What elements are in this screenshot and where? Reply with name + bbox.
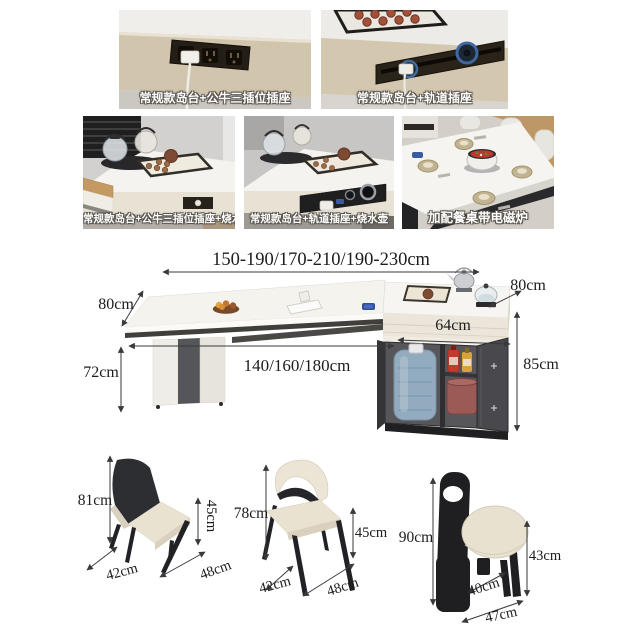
chair-b-seat-width: 48cm <box>325 574 361 599</box>
photo-dining-table-induction: 加配餐桌带电磁炉 <box>402 116 554 229</box>
hot-pot <box>464 149 500 173</box>
dim-island-height: 85cm <box>523 356 559 373</box>
photo-caption: 常规款岛台+公牛三插位插座 <box>119 89 311 106</box>
dim-island-width: 64cm <box>435 317 471 334</box>
table-dimension-diagram: 150-190/170-210/190-230cm 80cm 80cm 64cm… <box>0 240 640 450</box>
photo-caption: 常规款岛台+轨道插座+烧水壶 <box>244 211 394 226</box>
open-cabinet-door <box>477 338 508 432</box>
photo-caption: 加配餐桌带电磁炉 <box>402 207 554 226</box>
dim-total-length: 150-190/170-210/190-230cm <box>212 250 430 270</box>
chair-c-seat-height: 43cm <box>529 548 562 564</box>
water-jug <box>394 344 436 420</box>
chair-dimension-diagrams: 81cm 45cm 42cm 48cm 78cm 45cm 42cm <box>0 448 640 640</box>
control-recess <box>183 197 213 209</box>
dim-depth-right: 80cm <box>510 277 546 294</box>
chair-b-back-height: 78cm <box>234 505 268 522</box>
furniture-spec-sheet: 常规款岛台+公牛三插位插座 常规款岛台+轨道插座 <box>0 0 640 640</box>
chair-c-seat-width: 47cm <box>484 604 520 626</box>
chair-c-back-height: 90cm <box>399 529 433 546</box>
photo-island-track-socket-kettle: 常规款岛台+轨道插座+烧水壶 <box>244 116 394 229</box>
chair-a-seat-depth: 42cm <box>104 560 140 584</box>
chair-a-back-height: 81cm <box>78 492 112 509</box>
chair-c-seat-depth: 40cm <box>466 574 502 599</box>
photo-island-bull-socket: 常规款岛台+公牛三插位插座 <box>119 10 311 109</box>
photo-island-bull-socket-kettle: 常规款岛台+公牛三插位插座+烧水壶 <box>83 116 235 229</box>
dim-fixed-length: 140/160/180cm <box>244 356 351 375</box>
photo-caption: 常规款岛台+公牛三插位插座+烧水壶 <box>83 211 235 226</box>
chair-a-seat-width: 48cm <box>198 557 234 583</box>
chair-a-seat-height: 45cm <box>203 500 219 533</box>
photo-island-track-socket: 常规款岛台+轨道插座 <box>321 10 508 109</box>
extendable-table-drawing <box>125 268 510 440</box>
tea-island-behind <box>402 116 438 138</box>
dim-depth-left: 80cm <box>98 296 134 313</box>
photo-caption: 常规款岛台+轨道插座 <box>321 89 508 106</box>
chair-a-drawing <box>109 459 190 574</box>
bucket <box>447 379 477 415</box>
storage-cabinet <box>377 338 508 440</box>
wireless-charger <box>412 152 423 158</box>
panel-leg <box>153 337 225 409</box>
chair-b-seat-depth: 42cm <box>257 573 293 597</box>
dim-table-height: 72cm <box>83 364 119 381</box>
chair-b-seat-height: 45cm <box>355 525 388 541</box>
